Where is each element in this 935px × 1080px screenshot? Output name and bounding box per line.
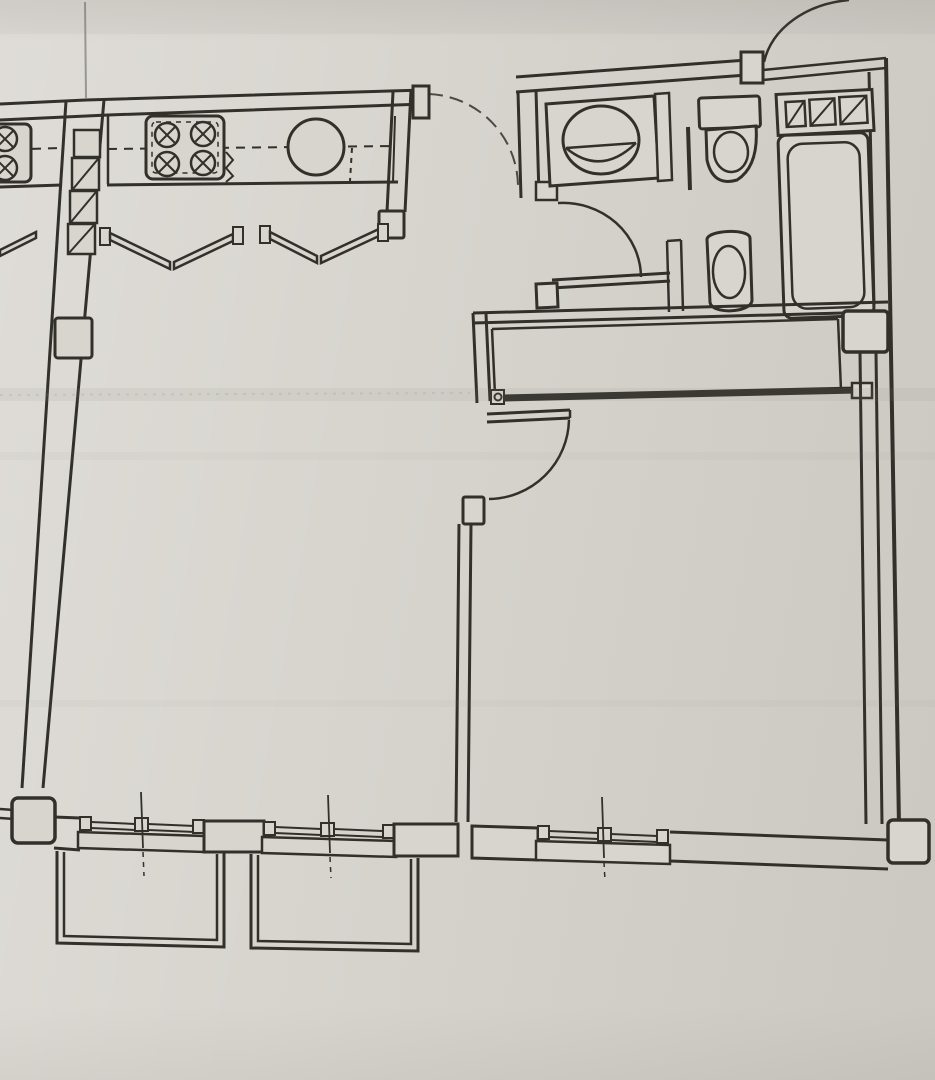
window-3	[536, 797, 670, 881]
wall-pier-box	[55, 318, 92, 358]
kitchen	[100, 90, 411, 269]
party-wall	[22, 100, 104, 788]
bedroom	[487, 352, 882, 824]
scanned-floorplan-page	[0, 0, 935, 1080]
bathroom-door-arc	[558, 203, 641, 277]
neighbor-kitchen	[0, 124, 62, 819]
corner-column-sw	[12, 798, 55, 843]
window-2	[262, 795, 396, 878]
entry-jamb	[413, 86, 429, 118]
partition-jamb	[463, 497, 484, 524]
duct-hatch-shaft	[68, 158, 99, 254]
wall-pier-2	[394, 824, 458, 856]
balcony-1	[57, 851, 224, 947]
balcony-2	[251, 854, 418, 951]
duct-box	[74, 130, 100, 157]
neighbor-door-leaf	[0, 232, 36, 256]
corridor-door-jamb	[741, 52, 763, 83]
entrance-door-arc	[429, 94, 518, 187]
wall-pier-1	[204, 821, 264, 852]
counter-break-mark-2	[350, 148, 352, 181]
vent-shaft-icon	[776, 89, 874, 135]
bath-partition-stub	[688, 127, 690, 190]
bifold-doors	[100, 224, 388, 269]
corner-column-se	[888, 820, 929, 863]
kitchen-sink-icon	[288, 119, 344, 175]
counter-front-edge	[107, 182, 398, 185]
floor-plan-drawing	[0, 0, 935, 1080]
east-inner-wall	[860, 352, 866, 824]
bathtub-icon	[778, 132, 874, 318]
bath-partition	[655, 93, 672, 181]
crease-line	[0, 388, 935, 401]
counter-break-mark	[226, 152, 233, 182]
closet-column	[843, 311, 888, 352]
window-1	[78, 792, 204, 876]
window-sill	[78, 832, 204, 852]
toilet-2-icon	[707, 231, 752, 310]
bath-door-jamb-bottom	[536, 283, 558, 308]
washbasin-icon	[546, 96, 659, 186]
door-wall-stub	[487, 410, 570, 414]
partition-wall	[456, 497, 484, 822]
toilet-icon	[698, 96, 760, 182]
bottom-wall	[12, 792, 929, 951]
stove-icon	[146, 116, 224, 179]
exterior-east-wall	[886, 58, 899, 826]
